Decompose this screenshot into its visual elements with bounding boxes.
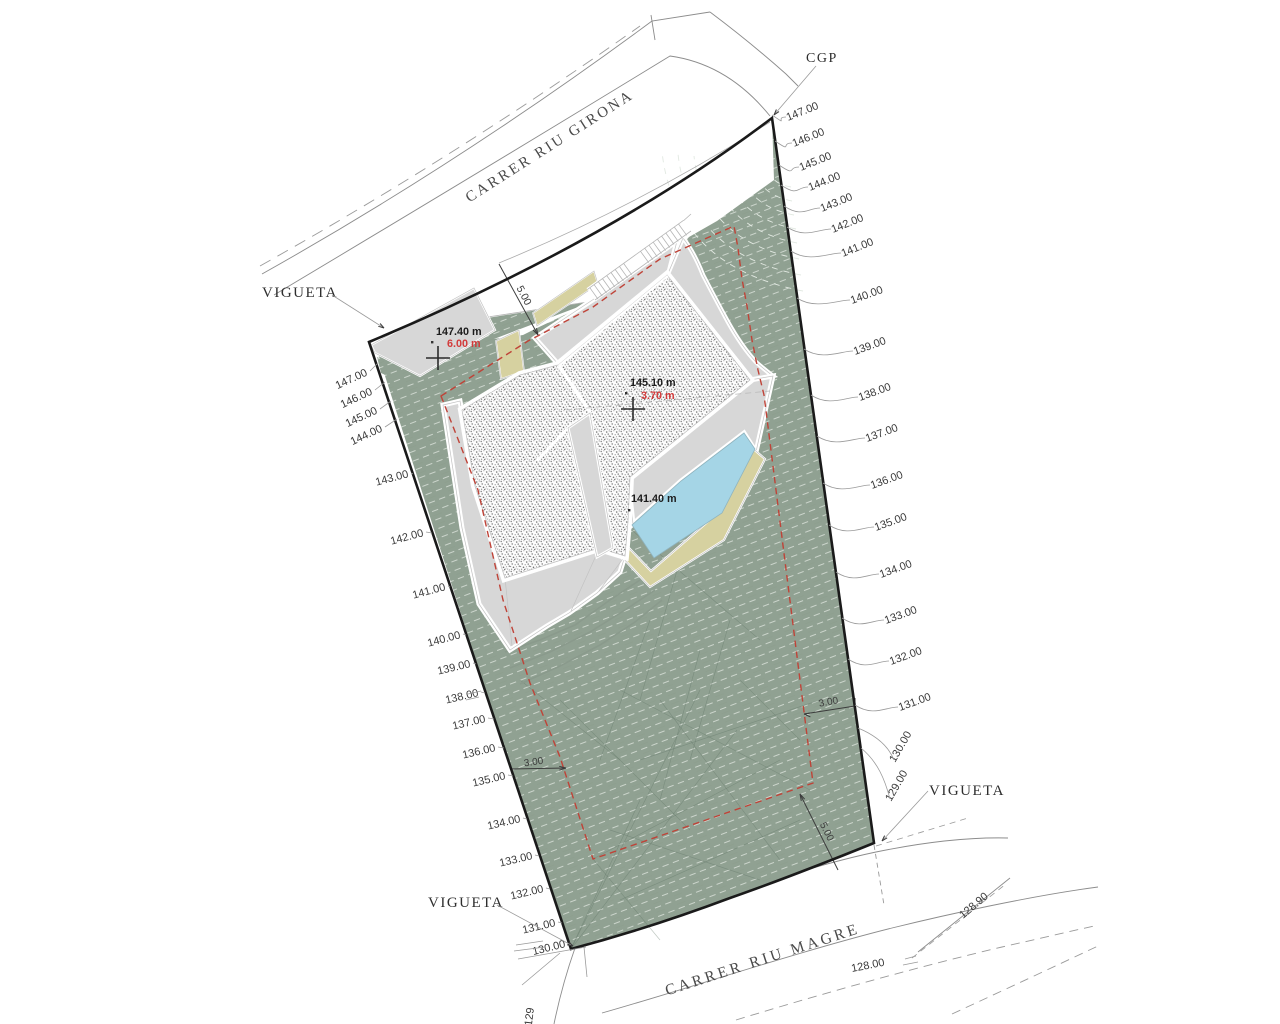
svg-text:6.00 m: 6.00 m	[447, 338, 481, 350]
svg-text:CGP: CGP	[806, 51, 838, 66]
svg-text:129: 129	[523, 1007, 537, 1024]
svg-text:3.70 m: 3.70 m	[641, 390, 675, 402]
svg-text:VIGUETA: VIGUETA	[262, 285, 338, 301]
svg-text:141.40 m: 141.40 m	[631, 493, 677, 505]
svg-text:145.10 m: 145.10 m	[630, 377, 676, 389]
svg-text:VIGUETA: VIGUETA	[929, 783, 1005, 799]
svg-text:VIGUETA: VIGUETA	[428, 895, 504, 911]
svg-text:147.40 m: 147.40 m	[436, 326, 482, 338]
